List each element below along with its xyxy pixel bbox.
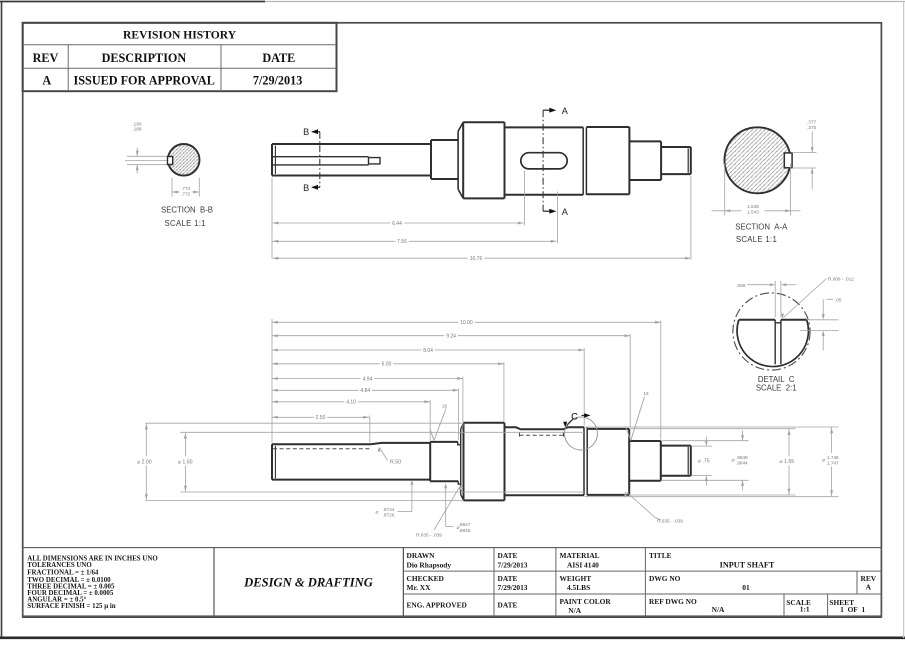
svg-text:N/A: N/A xyxy=(568,606,581,615)
svg-text:C: C xyxy=(571,411,578,422)
svg-text:4.5LBS: 4.5LBS xyxy=(567,583,590,592)
svg-text:A: A xyxy=(866,583,872,592)
svg-text:SURFACE FINISH = 125 μ in: SURFACE FINISH = 125 μ in xyxy=(27,603,115,610)
svg-text:8.04: 8.04 xyxy=(423,348,433,354)
svg-text:.8734: .8734 xyxy=(383,507,395,512)
svg-text:7/29/2013: 7/29/2013 xyxy=(253,74,302,88)
svg-text:REV: REV xyxy=(33,51,59,65)
svg-text:1 OF 1: 1 OF 1 xyxy=(840,605,865,614)
svg-text:B: B xyxy=(303,127,309,137)
svg-text:INPUT SHAFT: INPUT SHAFT xyxy=(720,560,775,569)
svg-text:1.747: 1.747 xyxy=(827,461,839,466)
svg-text:.190: .190 xyxy=(132,121,142,126)
svg-text:.9847: .9847 xyxy=(459,522,471,527)
svg-text:1:1: 1:1 xyxy=(800,605,810,614)
svg-text:SECTION B-B: SECTION B-B xyxy=(161,206,213,215)
svg-text:1.543: 1.543 xyxy=(747,210,759,215)
svg-text:10.76: 10.76 xyxy=(470,256,483,262)
svg-text:R.50: R.50 xyxy=(390,459,401,465)
svg-text:SCALE 2:1: SCALE 2:1 xyxy=(756,384,797,393)
svg-text:SCALE 1:1: SCALE 1:1 xyxy=(736,235,777,244)
svg-text:Mr. XX: Mr. XX xyxy=(407,583,432,592)
svg-text:R.008 - .012: R.008 - .012 xyxy=(828,276,854,281)
svg-text:.068: .068 xyxy=(736,283,746,288)
svg-text:.188: .188 xyxy=(132,127,142,132)
svg-text:6.44: 6.44 xyxy=(392,221,402,227)
svg-text:⌀: ⌀ xyxy=(375,510,378,516)
svg-text:9.24: 9.24 xyxy=(446,334,456,340)
svg-text:DATE: DATE xyxy=(262,51,295,65)
svg-text:A: A xyxy=(562,207,569,217)
svg-text:ENG. APPROVED: ENG. APPROVED xyxy=(407,601,467,610)
svg-text:16: 16 xyxy=(643,391,649,396)
svg-text:SCALE 1:1: SCALE 1:1 xyxy=(165,219,206,228)
svg-text:SECTION A-A: SECTION A-A xyxy=(735,223,788,232)
svg-text:TITLE: TITLE xyxy=(649,551,672,560)
svg-text:REVISION HISTORY: REVISION HISTORY xyxy=(123,28,237,41)
svg-text:WEIGHT: WEIGHT xyxy=(560,574,592,583)
svg-text:AISI 4140: AISI 4140 xyxy=(567,560,599,569)
svg-text:4.94: 4.94 xyxy=(363,376,373,382)
svg-text:DATE: DATE xyxy=(498,551,518,560)
svg-text:PAINT COLOR: PAINT COLOR xyxy=(560,597,612,606)
svg-text:6.00: 6.00 xyxy=(382,362,392,368)
svg-text:1.746: 1.746 xyxy=(827,455,839,460)
svg-text:10.00: 10.00 xyxy=(460,320,473,326)
svg-text:⌀ 2.00: ⌀ 2.00 xyxy=(137,460,152,466)
svg-text:.375: .375 xyxy=(807,125,817,130)
svg-text:01: 01 xyxy=(742,583,750,592)
svg-text:.9844: .9844 xyxy=(736,461,748,466)
svg-text:7/29/2013: 7/29/2013 xyxy=(498,583,528,592)
svg-text:TOLERANCES UNO: TOLERANCES UNO xyxy=(27,562,92,569)
svg-text:REF DWG NO: REF DWG NO xyxy=(649,597,697,606)
svg-text:.9848: .9848 xyxy=(736,455,748,460)
svg-text:1.545: 1.545 xyxy=(747,204,759,209)
svg-text:A: A xyxy=(562,106,569,116)
svg-text:A: A xyxy=(42,74,51,88)
svg-text:⌀: ⌀ xyxy=(822,458,825,464)
svg-text:ISSUED FOR APPROVAL: ISSUED FOR APPROVAL xyxy=(74,74,215,88)
svg-text:2.50: 2.50 xyxy=(316,415,326,421)
svg-text:.774: .774 xyxy=(181,186,191,191)
svg-text:4.10: 4.10 xyxy=(346,400,356,406)
svg-text:⌀ 1.65: ⌀ 1.65 xyxy=(779,459,794,465)
svg-text:DRAWN: DRAWN xyxy=(407,551,436,560)
svg-text:16: 16 xyxy=(442,403,448,408)
svg-text:.05: .05 xyxy=(835,297,842,302)
svg-text:7.56: 7.56 xyxy=(397,239,407,245)
svg-text:7/29/2013: 7/29/2013 xyxy=(498,560,528,569)
svg-text:DATE: DATE xyxy=(498,601,518,610)
svg-text:B: B xyxy=(303,183,309,193)
svg-text:FRACTIONAL = ± 1/64: FRACTIONAL = ± 1/64 xyxy=(27,569,99,576)
svg-text:.772: .772 xyxy=(181,192,191,197)
svg-text:R.035 - .039: R.035 - .039 xyxy=(657,519,683,524)
svg-text:Dio Rhapsody: Dio Rhapsody xyxy=(407,560,452,569)
svg-text:⌀: ⌀ xyxy=(731,458,734,464)
svg-text:DESCRIPTION: DESCRIPTION xyxy=(102,51,187,65)
svg-text:.9845: .9845 xyxy=(459,528,471,533)
svg-text:.377: .377 xyxy=(807,119,817,124)
svg-text:CHECKED: CHECKED xyxy=(407,574,444,583)
svg-text:R.035 - .039: R.035 - .039 xyxy=(416,532,442,537)
svg-text:DESIGN & DRAFTING: DESIGN & DRAFTING xyxy=(243,576,373,590)
svg-text:MATERIAL: MATERIAL xyxy=(560,551,600,560)
svg-text:DATE: DATE xyxy=(498,574,518,583)
svg-text:⌀ .75: ⌀ .75 xyxy=(698,459,710,465)
svg-text:DWG NO: DWG NO xyxy=(649,574,681,583)
svg-text:.8726: .8726 xyxy=(383,513,395,518)
svg-text:N/A: N/A xyxy=(712,605,725,614)
svg-text:4.84: 4.84 xyxy=(360,388,370,394)
svg-text:⌀ 1.50: ⌀ 1.50 xyxy=(178,460,193,466)
